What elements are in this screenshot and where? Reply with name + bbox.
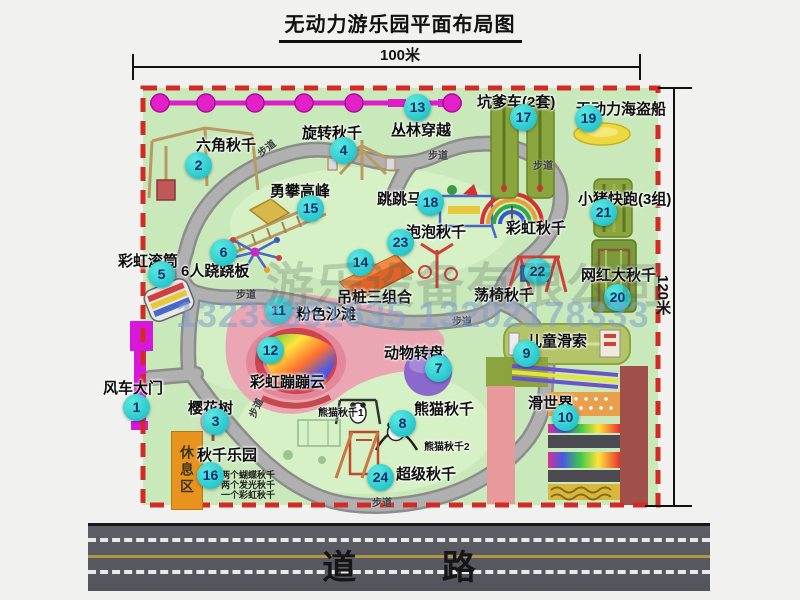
attraction-marker: 14 (347, 249, 374, 276)
attraction-marker: 21 (590, 199, 617, 226)
attraction-label: 跳跳马 (377, 188, 422, 209)
attraction-marker: 13 (404, 94, 431, 121)
attraction-marker: 11 (265, 297, 292, 324)
walkway-label: 步道 (452, 313, 472, 328)
attraction-marker: 18 (417, 189, 444, 216)
attraction-marker: 20 (604, 284, 631, 311)
rest-area-label: 休息区 (177, 445, 197, 496)
attraction-marker: 16 (197, 462, 224, 489)
attraction-marker: 17 (510, 104, 537, 131)
attraction-marker: 23 (387, 229, 414, 256)
attraction-label: 熊猫秋千 (414, 398, 474, 419)
attraction-marker: 10 (552, 404, 579, 431)
attraction-marker: 5 (148, 261, 175, 288)
attraction-label: 彩虹蹦蹦云 (250, 371, 325, 392)
screenshot-stage: 无动力游乐园平面布局图 100米 120米 休息区 风车大门1六角秋千2樱花树3… (0, 0, 800, 600)
attraction-marker: 9 (513, 340, 540, 367)
attraction-marker: 19 (575, 105, 602, 132)
attraction-marker: 3 (202, 408, 229, 435)
attraction-label: 泡泡秋千 (406, 221, 466, 242)
attraction-label: 旋转秋千 (302, 122, 362, 143)
walkway-label: 步道 (372, 494, 392, 509)
sub-label: 熊猫秋千2 (424, 438, 470, 453)
page-title: 无动力游乐园平面布局图 (0, 8, 800, 43)
attraction-label: 勇攀高峰 (270, 180, 330, 201)
road: 道 路 (88, 523, 710, 591)
attraction-marker: 8 (389, 410, 416, 437)
road-label: 道 路 (88, 540, 710, 589)
attraction-marker: 4 (330, 137, 357, 164)
attraction-label: 六角秋千 (196, 134, 256, 155)
swing-note-line: 一个彩虹秋千 (221, 488, 275, 501)
attraction-marker: 15 (297, 195, 324, 222)
attraction-marker: 2 (185, 152, 212, 179)
attraction-label: 丛林穿越 (391, 119, 451, 140)
sub-label: 彩虹秋千 (506, 217, 566, 238)
attraction-marker: 1 (123, 394, 150, 421)
walkway-label: 步道 (533, 157, 553, 172)
width-dimension-label: 100米 (340, 44, 460, 65)
walkway-label: 步道 (428, 147, 448, 162)
attraction-marker: 24 (367, 464, 394, 491)
attraction-label: 吊桩三组合 (337, 286, 412, 307)
attraction-marker: 7 (425, 355, 452, 382)
attraction-marker: 22 (524, 258, 551, 285)
attraction-label: 荡椅秋千 (474, 284, 534, 305)
height-dimension-label: 120米 (652, 275, 673, 315)
attraction-marker: 6 (210, 239, 237, 266)
attraction-marker: 12 (257, 337, 284, 364)
walkway-label: 步道 (236, 286, 256, 301)
attraction-label: 超级秋千 (396, 463, 456, 484)
sub-label: 熊猫秋千1 (318, 404, 364, 419)
attraction-label: 网红大秋千 (581, 264, 656, 285)
